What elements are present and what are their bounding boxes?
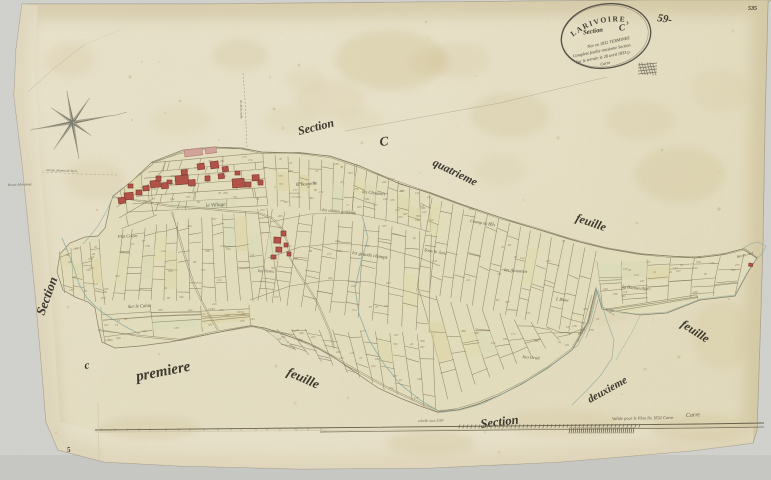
svg-text:372: 372	[104, 323, 109, 327]
svg-text:60: 60	[314, 188, 318, 192]
svg-text:171: 171	[201, 312, 206, 316]
svg-text:48: 48	[193, 260, 197, 264]
svg-text:195: 195	[226, 247, 231, 251]
svg-text:341: 341	[365, 197, 370, 201]
svg-text:353: 353	[398, 215, 403, 219]
svg-text:39: 39	[66, 253, 70, 257]
svg-text:5: 5	[67, 446, 71, 454]
svg-text:290: 290	[399, 189, 404, 193]
svg-text:286: 286	[697, 255, 702, 259]
svg-text:121: 121	[174, 179, 179, 183]
svg-text:181: 181	[640, 279, 645, 283]
svg-text:281: 281	[220, 159, 225, 163]
svg-text:357: 357	[212, 217, 217, 221]
svg-text:196: 196	[415, 218, 420, 222]
svg-text:49: 49	[92, 252, 96, 256]
svg-text:311: 311	[194, 166, 199, 170]
svg-text:38: 38	[340, 165, 344, 169]
svg-text:117: 117	[201, 268, 206, 272]
svg-text:26: 26	[410, 342, 414, 346]
svg-text:192: 192	[491, 341, 496, 345]
svg-text:388: 388	[461, 329, 466, 333]
svg-text:133: 133	[170, 182, 175, 186]
svg-text:51: 51	[256, 197, 260, 201]
svg-text:323: 323	[186, 195, 191, 199]
svg-text:340: 340	[365, 244, 370, 248]
svg-text:287: 287	[420, 345, 425, 349]
svg-text:334: 334	[208, 159, 213, 163]
svg-text:338: 338	[420, 339, 425, 343]
svg-text:105: 105	[225, 313, 230, 317]
svg-text:328: 328	[583, 307, 588, 311]
svg-text:230: 230	[241, 312, 246, 316]
svg-text:204: 204	[187, 224, 192, 228]
svg-text:211: 211	[466, 278, 471, 282]
svg-text:299: 299	[337, 249, 342, 253]
svg-text:202: 202	[101, 296, 106, 300]
svg-text:131: 131	[72, 275, 77, 279]
svg-text:les Peres: les Peres	[258, 268, 274, 274]
svg-text:174: 174	[248, 158, 253, 162]
svg-text:110: 110	[422, 210, 427, 214]
svg-text:314: 314	[390, 177, 395, 181]
svg-text:535: 535	[748, 6, 757, 12]
svg-text:171: 171	[526, 311, 531, 315]
svg-text:384: 384	[309, 196, 314, 200]
svg-text:310: 310	[429, 218, 434, 222]
svg-text:97: 97	[142, 239, 146, 243]
svg-text:106: 106	[390, 198, 395, 202]
svg-text:350: 350	[222, 174, 227, 178]
svg-text:225: 225	[357, 205, 362, 209]
svg-text:60: 60	[704, 272, 708, 276]
svg-text:200: 200	[505, 300, 510, 304]
svg-text:371: 371	[279, 182, 284, 186]
svg-text:59-: 59-	[657, 12, 674, 26]
svg-text:167: 167	[386, 281, 391, 285]
svg-text:151: 151	[427, 195, 432, 199]
svg-text:ch. de la roche: ch. de la roche	[239, 100, 244, 120]
svg-text:358: 358	[88, 257, 93, 261]
svg-text:59: 59	[263, 166, 267, 170]
svg-text:187: 187	[393, 374, 398, 378]
svg-text:226: 226	[335, 239, 340, 243]
svg-text:388: 388	[474, 331, 479, 335]
svg-text:370: 370	[581, 321, 586, 325]
svg-text:242: 242	[382, 180, 387, 184]
svg-text:74: 74	[359, 356, 363, 360]
svg-text:386: 386	[170, 174, 175, 178]
svg-text:370: 370	[240, 319, 245, 323]
svg-text:332: 332	[393, 342, 398, 346]
svg-text:132: 132	[69, 288, 74, 292]
svg-text:113: 113	[433, 259, 438, 263]
svg-text:32: 32	[680, 263, 684, 267]
svg-text:111: 111	[94, 282, 99, 286]
svg-text:184: 184	[336, 350, 341, 354]
svg-text:18: 18	[289, 161, 293, 165]
svg-text:152: 152	[520, 256, 525, 260]
svg-text:336: 336	[589, 328, 594, 332]
svg-text:158: 158	[572, 324, 577, 328]
svg-text:168: 168	[603, 287, 608, 291]
svg-text:104: 104	[205, 173, 210, 177]
svg-text:104: 104	[250, 317, 255, 321]
svg-text:189: 189	[503, 337, 508, 341]
svg-text:80: 80	[104, 290, 108, 294]
svg-text:287: 287	[546, 259, 551, 263]
svg-text:87: 87	[369, 305, 373, 309]
svg-text:279: 279	[469, 207, 474, 211]
svg-text:36: 36	[514, 255, 518, 259]
svg-text:172: 172	[319, 190, 324, 194]
svg-text:205: 205	[328, 276, 333, 280]
svg-text:330: 330	[158, 308, 163, 312]
svg-text:199: 199	[293, 257, 298, 261]
svg-text:157: 157	[511, 332, 516, 336]
svg-text:240: 240	[383, 197, 388, 201]
svg-text:119: 119	[497, 272, 502, 276]
svg-text:299: 299	[116, 336, 121, 340]
svg-text:12: 12	[653, 270, 657, 274]
svg-text:113: 113	[250, 253, 255, 257]
svg-text:119: 119	[581, 328, 586, 332]
svg-text:283: 283	[288, 169, 293, 173]
svg-text:356: 356	[534, 339, 539, 343]
svg-text:103: 103	[384, 304, 389, 308]
svg-text:309: 309	[421, 206, 426, 210]
svg-text:353: 353	[190, 184, 195, 188]
svg-text:239: 239	[296, 195, 301, 199]
svg-text:227: 227	[311, 335, 316, 339]
svg-text:152: 152	[170, 197, 175, 201]
svg-text:155: 155	[278, 174, 283, 178]
svg-text:249: 249	[417, 377, 422, 381]
svg-text:352: 352	[292, 329, 297, 333]
svg-text:163: 163	[256, 180, 261, 184]
svg-text:220: 220	[351, 284, 356, 288]
svg-text:314: 314	[352, 308, 357, 312]
svg-text:277: 277	[298, 338, 303, 342]
svg-text:92: 92	[558, 340, 562, 344]
svg-text:143: 143	[693, 266, 698, 270]
svg-text:43: 43	[296, 328, 300, 332]
svg-text:113: 113	[646, 260, 651, 264]
svg-text:68: 68	[309, 249, 313, 253]
svg-text:121: 121	[145, 184, 150, 188]
svg-text:78: 78	[562, 239, 566, 243]
svg-text:Valide pour le Plan Ne 1832: Valide pour le Plan Ne 1832 Carre	[612, 415, 673, 421]
svg-text:190: 190	[696, 260, 701, 264]
svg-text:25: 25	[375, 305, 379, 309]
svg-text:213: 213	[105, 338, 110, 342]
svg-text:242: 242	[188, 308, 193, 312]
svg-text:354: 354	[348, 171, 353, 175]
svg-text:190: 190	[86, 268, 91, 272]
svg-text:177: 177	[293, 188, 298, 192]
svg-text:139: 139	[174, 326, 179, 330]
svg-text:125: 125	[395, 208, 400, 212]
svg-text:42: 42	[669, 270, 673, 274]
svg-text:272: 272	[339, 356, 344, 360]
svg-text:29: 29	[628, 268, 632, 272]
svg-text:168: 168	[205, 249, 210, 253]
svg-text:263: 263	[278, 214, 283, 218]
svg-text:79: 79	[84, 289, 88, 293]
svg-text:16: 16	[566, 325, 570, 329]
svg-text:54: 54	[315, 169, 319, 173]
svg-text:189: 189	[334, 162, 339, 166]
svg-text:369: 369	[621, 294, 626, 298]
svg-text:253: 253	[260, 208, 265, 212]
svg-text:71: 71	[346, 203, 350, 207]
svg-text:92: 92	[164, 286, 168, 290]
svg-text:337: 337	[382, 224, 387, 228]
svg-text:135: 135	[710, 261, 715, 265]
svg-text:22: 22	[501, 245, 505, 249]
svg-text:278: 278	[354, 187, 359, 191]
svg-text:306: 306	[416, 214, 421, 218]
svg-text:351: 351	[233, 195, 238, 199]
svg-text:371: 371	[208, 323, 213, 327]
svg-text:239: 239	[152, 187, 157, 191]
svg-text:234: 234	[371, 364, 376, 368]
svg-text:123: 123	[634, 273, 639, 277]
svg-text:213: 213	[75, 246, 80, 250]
svg-text:182: 182	[68, 260, 73, 264]
svg-text:137: 137	[287, 244, 292, 248]
svg-text:297: 297	[143, 199, 148, 203]
svg-text:222: 222	[182, 175, 187, 179]
svg-text:175: 175	[242, 155, 247, 159]
svg-text:270: 270	[220, 244, 225, 248]
svg-text:333: 333	[115, 274, 120, 278]
svg-text:346: 346	[299, 331, 304, 335]
svg-text:332: 332	[731, 268, 736, 272]
svg-text:217: 217	[327, 252, 332, 256]
svg-text:256: 256	[168, 269, 173, 273]
svg-text:10: 10	[131, 242, 135, 246]
svg-text:20: 20	[94, 245, 98, 249]
svg-text:60: 60	[508, 243, 512, 247]
svg-text:93: 93	[124, 317, 128, 321]
svg-text:76: 76	[218, 191, 222, 195]
svg-text:372: 372	[389, 386, 394, 390]
svg-text:138: 138	[145, 244, 150, 248]
svg-text:197: 197	[676, 269, 681, 273]
svg-text:122: 122	[161, 180, 166, 184]
svg-text:76: 76	[279, 157, 283, 161]
svg-text:188: 188	[613, 292, 618, 296]
svg-text:182: 182	[375, 357, 380, 361]
svg-text:19: 19	[596, 317, 600, 321]
svg-text:104: 104	[217, 278, 222, 282]
svg-text:42: 42	[340, 180, 344, 184]
svg-text:367: 367	[284, 200, 289, 204]
svg-text:117: 117	[414, 396, 419, 400]
svg-text:Carre: Carre	[686, 412, 701, 419]
svg-text:227: 227	[394, 333, 399, 337]
svg-text:243: 243	[212, 302, 217, 306]
svg-text:63: 63	[399, 378, 403, 382]
svg-text:85: 85	[197, 200, 201, 204]
svg-text:50: 50	[234, 178, 238, 182]
svg-text:245: 245	[142, 329, 147, 333]
svg-text:124: 124	[161, 249, 166, 253]
svg-text:340: 340	[179, 295, 184, 299]
svg-text:62: 62	[413, 236, 417, 240]
svg-text:121: 121	[415, 191, 420, 195]
svg-text:272: 272	[274, 295, 279, 299]
svg-text:74: 74	[115, 323, 119, 327]
svg-text:echelle un a 2500: echelle un a 2500	[418, 419, 444, 423]
svg-text:356: 356	[219, 308, 224, 312]
svg-text:327: 327	[403, 212, 408, 216]
svg-text:161: 161	[565, 343, 570, 347]
svg-text:116: 116	[350, 351, 355, 355]
svg-text:173: 173	[361, 329, 366, 333]
svg-text:160: 160	[693, 290, 698, 294]
svg-text:208: 208	[223, 191, 228, 195]
svg-text:82: 82	[496, 298, 500, 302]
svg-text:47: 47	[212, 307, 216, 311]
svg-text:275: 275	[735, 263, 740, 267]
svg-text:367: 367	[373, 203, 378, 207]
svg-text:80: 80	[167, 296, 171, 300]
svg-text:356: 356	[281, 335, 286, 339]
